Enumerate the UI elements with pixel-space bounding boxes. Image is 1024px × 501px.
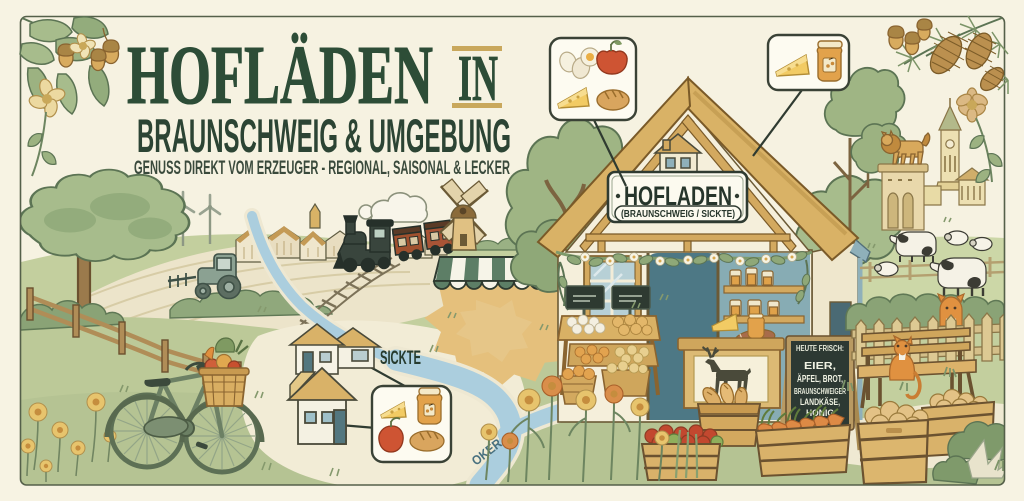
svg-text:HEUTE FRISCH:: HEUTE FRISCH: bbox=[796, 344, 844, 353]
svg-text:(BRAUNSCHWEIG / SICKTE): (BRAUNSCHWEIG / SICKTE) bbox=[621, 209, 735, 220]
svg-text:IN: IN bbox=[458, 42, 498, 115]
svg-text:GENUSS DIREKT VOM ERZEUGER - R: GENUSS DIREKT VOM ERZEUGER - REGIONAL, S… bbox=[134, 158, 510, 179]
svg-text:BRAUNSCHWEIGER: BRAUNSCHWEIGER bbox=[794, 387, 846, 396]
svg-text:ÄPFEL, BROT,: ÄPFEL, BROT, bbox=[797, 372, 843, 385]
svg-text:SICKTE: SICKTE bbox=[380, 348, 421, 369]
svg-text:EIER,: EIER, bbox=[804, 361, 836, 372]
svg-text:BRAUNSCHWEIG & UMGEBUNG: BRAUNSCHWEIG & UMGEBUNG bbox=[137, 109, 511, 162]
